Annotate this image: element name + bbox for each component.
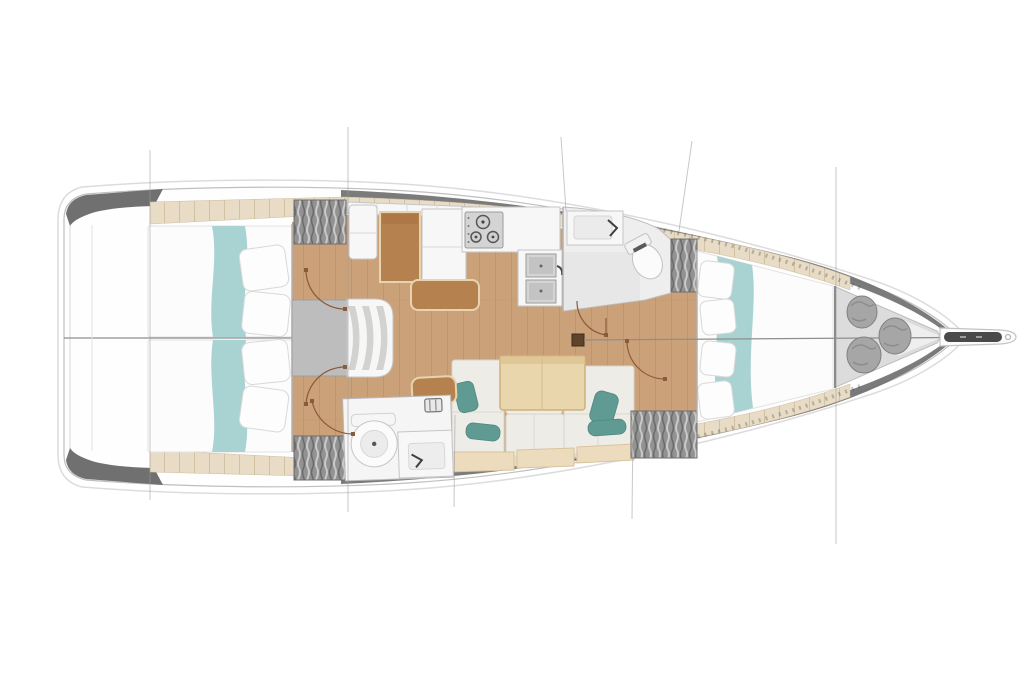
berth-pillow	[241, 339, 291, 386]
sink-drain	[540, 265, 543, 268]
door-hinge	[304, 268, 308, 272]
accent-cushion	[465, 422, 500, 441]
anchor-roller	[944, 332, 1002, 342]
berth-pillow	[241, 291, 291, 338]
forward-heads	[343, 395, 454, 481]
settee-base	[517, 448, 574, 468]
door-hinge	[604, 333, 608, 337]
burner-center	[492, 236, 495, 239]
door-hinge	[625, 339, 629, 343]
sink-drain	[540, 290, 543, 293]
settee-base	[577, 444, 634, 463]
door-hinge	[304, 402, 308, 406]
berth-pillow	[699, 340, 736, 377]
sail-bag	[847, 296, 877, 328]
berth-pillow	[697, 380, 735, 420]
hanging-locker-aft-starboard	[294, 436, 346, 480]
door-hinge	[343, 365, 347, 369]
engine-box-platform	[292, 300, 347, 376]
hanging-locker-heads	[671, 239, 697, 292]
vent-hatch-icon	[425, 398, 442, 412]
settee-base	[448, 452, 514, 472]
hanging-locker-aft-port	[294, 200, 346, 244]
heads-sink-basin	[574, 216, 612, 239]
accent-cushion	[588, 419, 627, 437]
sail-bag	[847, 337, 881, 373]
section-line	[561, 137, 566, 211]
mast-post	[572, 334, 584, 346]
berth-pillow	[697, 260, 735, 300]
door-hinge	[310, 399, 314, 403]
galley-cabinet	[422, 209, 466, 283]
sail-bag	[879, 318, 911, 354]
yacht-floorplan	[0, 0, 1024, 676]
door-hinge	[351, 432, 355, 436]
burner-center	[481, 220, 484, 223]
door-hinge	[343, 307, 347, 311]
berth-pillow	[699, 298, 736, 335]
berth-pillow	[238, 244, 289, 292]
nav-bench	[411, 280, 479, 310]
section-line	[679, 141, 692, 231]
burner-center	[475, 236, 478, 239]
chart-table-shelf	[382, 214, 418, 224]
berth-pillow	[238, 385, 289, 433]
door-hinge	[663, 377, 667, 381]
hanging-locker-forward	[631, 411, 697, 458]
nav-seat	[349, 205, 377, 259]
floorplan-canvas	[0, 0, 1024, 676]
